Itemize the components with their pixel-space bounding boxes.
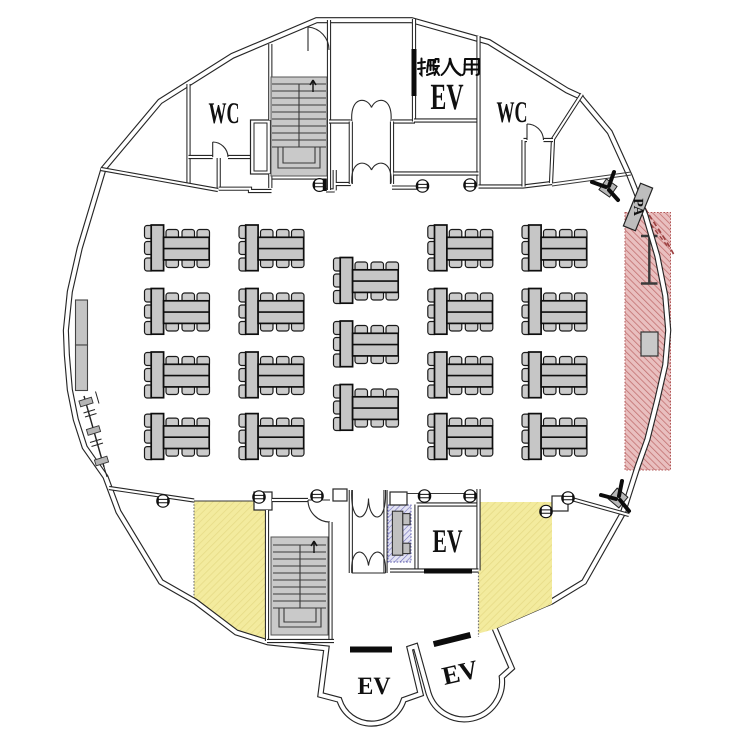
- svg-text:PA: PA: [630, 198, 645, 217]
- svg-text:WC: WC: [497, 96, 528, 129]
- svg-text:EV: EV: [433, 524, 463, 560]
- svg-text:WC: WC: [209, 97, 240, 130]
- svg-text:EV: EV: [431, 77, 464, 118]
- svg-text:EV: EV: [358, 673, 391, 700]
- svg-text:EV: EV: [439, 654, 481, 690]
